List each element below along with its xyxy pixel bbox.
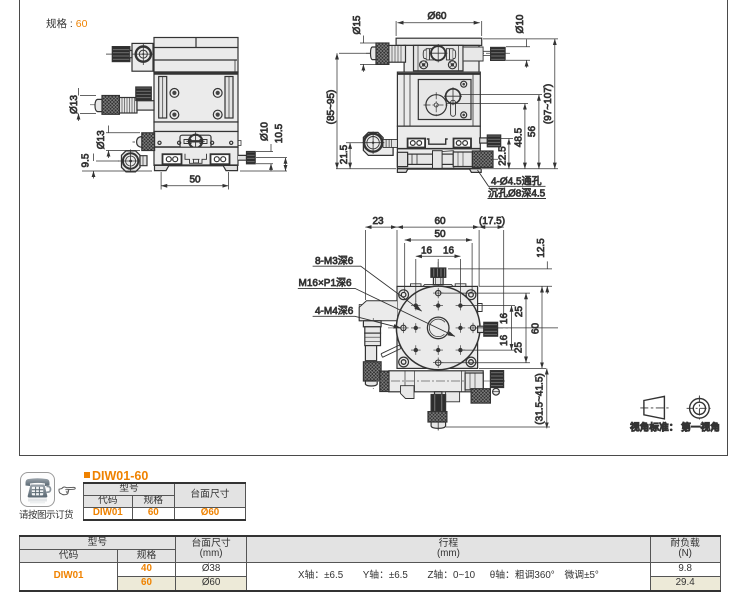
svg-text:25: 25 (514, 306, 525, 318)
svg-text:8-M3深6: 8-M3深6 (315, 255, 354, 267)
svg-text:Ø60: Ø60 (428, 11, 447, 22)
svg-text:4-Ø4.5通孔: 4-Ø4.5通孔 (491, 176, 542, 188)
svg-text:16: 16 (443, 245, 455, 256)
svg-text:视角标准： 第一视角: 视角标准： 第一视角 (630, 421, 720, 434)
svg-text:23: 23 (372, 216, 384, 227)
svg-text:25: 25 (514, 342, 525, 354)
svg-text:56: 56 (527, 126, 538, 138)
svg-text:4-M4深6: 4-M4深6 (315, 305, 354, 317)
svg-text:(31.5~41.5): (31.5~41.5) (535, 373, 546, 424)
svg-text:16: 16 (421, 245, 433, 256)
svg-text:M16×P1深6: M16×P1深6 (299, 277, 353, 289)
svg-text:60: 60 (531, 323, 542, 335)
svg-text:Ø13: Ø13 (96, 130, 107, 149)
svg-text:沉孔Ø8深4.5: 沉孔Ø8深4.5 (488, 187, 546, 200)
svg-text:22.5: 22.5 (498, 146, 509, 166)
svg-text:16: 16 (499, 313, 510, 325)
svg-text:12.5: 12.5 (536, 238, 547, 258)
svg-text:16: 16 (499, 334, 510, 346)
svg-text:9.5: 9.5 (81, 153, 92, 167)
svg-text:48.5: 48.5 (514, 127, 525, 147)
svg-text:Ø10: Ø10 (515, 14, 526, 33)
svg-text:(85~95): (85~95) (326, 90, 337, 125)
svg-text:50: 50 (434, 229, 446, 240)
svg-text:Ø13: Ø13 (69, 95, 80, 114)
svg-text:Ø10: Ø10 (260, 122, 271, 141)
svg-text:Ø15: Ø15 (352, 15, 363, 34)
svg-text:50: 50 (189, 175, 201, 186)
svg-text:60: 60 (434, 216, 446, 227)
svg-text:10.5: 10.5 (274, 123, 285, 143)
svg-text:21.5: 21.5 (339, 144, 350, 164)
svg-text:(97~107): (97~107) (543, 84, 554, 124)
svg-text:(17.5): (17.5) (479, 216, 505, 227)
